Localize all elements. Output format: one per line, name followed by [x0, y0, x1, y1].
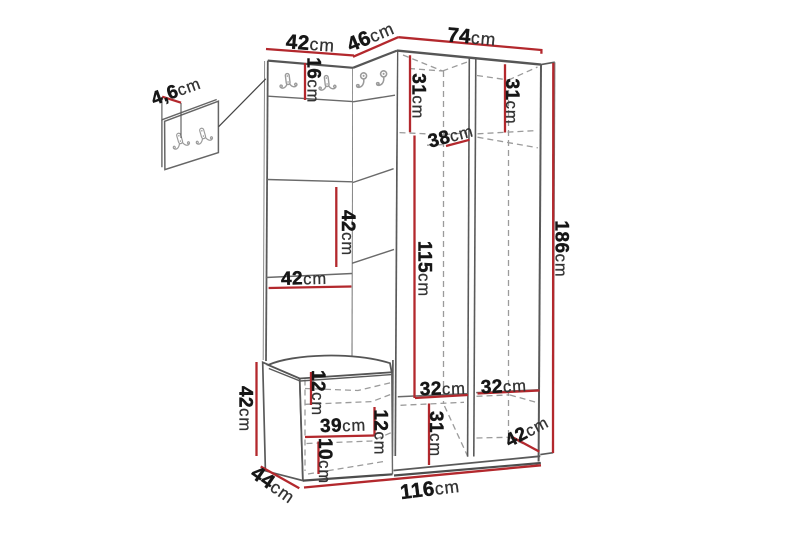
svg-text:12cm: 12cm: [370, 409, 391, 455]
svg-text:115cm: 115cm: [413, 241, 434, 297]
svg-text:39cm: 39cm: [320, 415, 367, 438]
svg-text:42cm: 42cm: [281, 268, 328, 290]
svg-text:10cm: 10cm: [314, 438, 335, 484]
svg-text:12cm: 12cm: [307, 370, 328, 416]
svg-text:186cm: 186cm: [551, 220, 572, 277]
svg-text:42cm: 42cm: [337, 210, 358, 256]
svg-text:42cm: 42cm: [285, 30, 336, 56]
svg-text:32cm: 32cm: [480, 375, 527, 398]
svg-text:32cm: 32cm: [419, 378, 466, 401]
svg-text:42cm: 42cm: [235, 386, 256, 432]
svg-text:31cm: 31cm: [425, 411, 446, 457]
svg-text:31cm: 31cm: [407, 73, 428, 119]
svg-text:16cm: 16cm: [302, 57, 323, 103]
svg-text:31cm: 31cm: [501, 78, 522, 124]
